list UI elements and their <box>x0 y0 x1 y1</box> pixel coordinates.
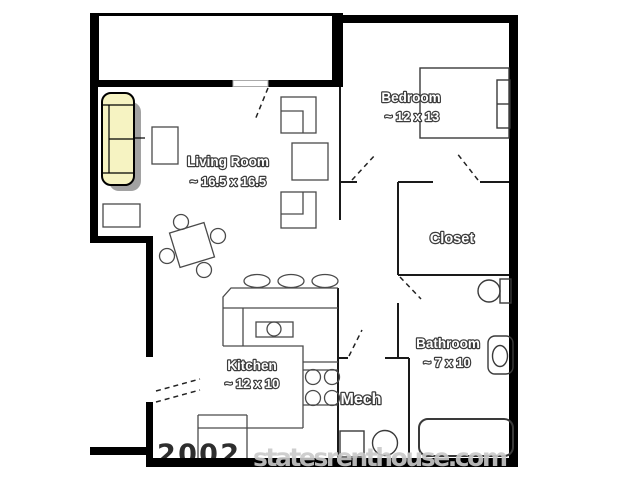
left-wall-lower-a <box>146 236 153 357</box>
entry-stub-wall <box>90 447 148 455</box>
floor-plan-page: 2002 <box>0 0 640 480</box>
bedroom-top-wall <box>332 15 518 23</box>
bathroom-label: Bathroom <box>416 336 480 351</box>
living-room-label: Living Room <box>187 154 269 169</box>
closet-label: Closet <box>430 231 474 247</box>
living-room-dims: ~ 16.5 x 16.5 <box>190 174 266 189</box>
bathroom-dims: ~ 7 x 10 <box>423 355 470 370</box>
kitchen-dims: ~ 12 x 10 <box>225 376 280 391</box>
mech-label: Mech <box>341 391 382 408</box>
sofa <box>102 93 145 191</box>
balcony-right-wall <box>332 13 343 87</box>
bedroom-label: Bedroom <box>381 90 440 105</box>
living-top-wall-right <box>268 80 340 87</box>
balcony-left-wall <box>90 13 99 87</box>
floor-plan: 2002 <box>0 0 640 480</box>
kitchen-label: Kitchen <box>227 358 277 373</box>
balcony-top-line <box>92 13 341 16</box>
left-wall-upper <box>90 80 98 242</box>
step-wall <box>90 236 152 243</box>
sliding-door-opening <box>233 81 268 87</box>
living-top-wall-left <box>90 80 233 87</box>
bedroom-dims: ~ 12 x 13 <box>385 109 440 124</box>
watermark-site: statesrenthouse.com <box>253 443 508 472</box>
